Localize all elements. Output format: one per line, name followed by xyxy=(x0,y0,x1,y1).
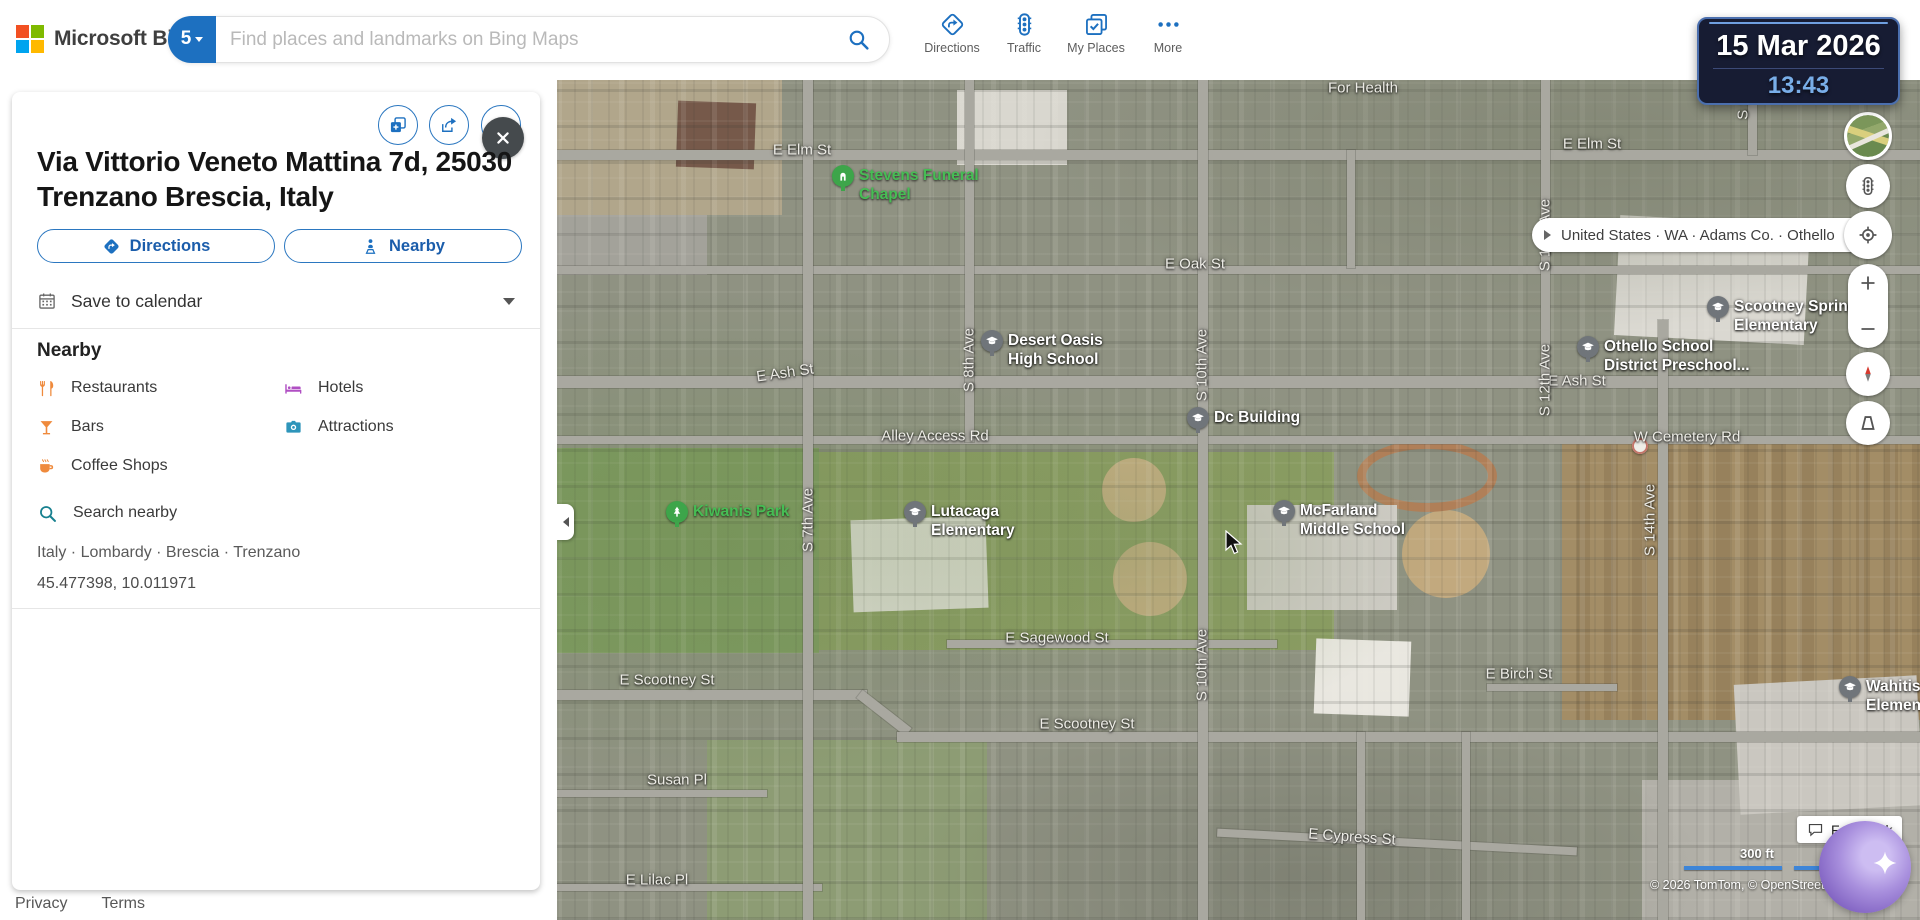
gradcap-icon xyxy=(1577,336,1599,358)
share-button[interactable] xyxy=(429,105,469,145)
nav-more-button[interactable]: More xyxy=(1138,11,1198,55)
directions-icon xyxy=(939,11,966,38)
nearby-restaurants[interactable]: Restaurants xyxy=(37,377,284,399)
save-to-calendar-label: Save to calendar xyxy=(71,291,489,312)
locate-icon xyxy=(1857,224,1879,246)
nearby-bars[interactable]: Bars xyxy=(37,416,284,438)
search-history-badge[interactable]: 5 xyxy=(168,16,216,63)
gradcap-icon xyxy=(1707,296,1729,318)
location-panel: Via Vittorio Veneto Mattina 7d, 25030Tre… xyxy=(12,92,540,890)
nearby-category-grid: RestaurantsHotelsBarsAttractionsCoffee S… xyxy=(37,377,515,524)
nearby-category-label: Search nearby xyxy=(73,504,177,522)
nav-label: Traffic xyxy=(1007,41,1041,55)
chevron-down-icon xyxy=(195,37,203,42)
tree-icon xyxy=(666,501,688,523)
place-label: WahitisElementary xyxy=(1866,677,1920,715)
place-label: Scootney SpringsElementary xyxy=(1734,297,1866,335)
save-icon xyxy=(388,115,408,135)
chevron-left-icon xyxy=(563,517,569,527)
gradcap-icon xyxy=(981,330,1003,352)
top-bar: Microsoft Bing 5 DirectionsTrafficMy Pla… xyxy=(0,0,1920,80)
footer-link-terms[interactable]: Terms xyxy=(101,895,145,913)
map-scale-bar xyxy=(1684,866,1782,870)
place-label: Othello SchoolDistrict Preschool... xyxy=(1604,337,1750,375)
traffic-toggle-button[interactable] xyxy=(1846,164,1890,208)
gradcap-icon xyxy=(1187,407,1209,429)
nav-label: More xyxy=(1154,41,1182,55)
breadcrumb: Italy · Lombardy · Brescia · Trenzano xyxy=(37,544,300,562)
copilot-button[interactable] xyxy=(1819,821,1911,913)
zoom-control xyxy=(1848,264,1888,348)
restaurants-icon xyxy=(37,379,56,398)
nav-directions-button[interactable]: Directions xyxy=(922,11,982,55)
gradcap-icon xyxy=(1273,500,1295,522)
badge-count: 5 xyxy=(181,28,192,50)
footer-link-privacy[interactable]: Privacy xyxy=(15,895,67,913)
save-place-button[interactable] xyxy=(378,105,418,145)
microsoft-logo-icon xyxy=(16,25,44,53)
footer-links: PrivacyTerms xyxy=(15,895,145,913)
gradcap-icon xyxy=(904,501,926,523)
nearby-attractions[interactable]: Attractions xyxy=(284,416,515,438)
nearby-coffee[interactable]: Coffee Shops xyxy=(37,455,284,477)
nearby-category-label: Hotels xyxy=(318,379,363,397)
search-input[interactable] xyxy=(216,29,846,51)
compass-needle-icon xyxy=(1857,363,1879,385)
nearby-hotels[interactable]: Hotels xyxy=(284,377,515,399)
region-breadcrumb[interactable]: United States · WA · Adams Co. · Othello xyxy=(1532,218,1868,252)
place-label: LutacagaElementary xyxy=(931,502,1015,540)
top-nav: DirectionsTrafficMy PlacesMore xyxy=(922,11,1198,55)
clock-date: 15 Mar 2026 xyxy=(1699,30,1898,63)
gradcap-icon xyxy=(1839,676,1861,698)
divider xyxy=(12,328,540,329)
map-style-button[interactable] xyxy=(1844,112,1892,160)
calendar-icon xyxy=(37,291,57,311)
coffee-icon xyxy=(37,457,56,476)
nearby-category-label: Attractions xyxy=(318,418,394,436)
zoom-out-button[interactable] xyxy=(1858,319,1878,339)
place-label: Desert OasisHigh School xyxy=(1008,331,1103,369)
chevron-down-icon xyxy=(503,298,515,305)
search-icon[interactable] xyxy=(846,27,871,52)
nearby-heading: Nearby xyxy=(37,340,101,362)
expand-arrow-icon xyxy=(1544,230,1551,240)
directions-icon xyxy=(102,237,121,256)
map-style-thumbnail-icon xyxy=(1847,115,1889,157)
mouse-cursor xyxy=(1225,530,1247,556)
coordinates: 45.477398, 10.011971 xyxy=(37,575,196,593)
tilt-icon xyxy=(1857,412,1879,434)
place-label: McFarlandMiddle School xyxy=(1300,501,1405,539)
nearby-button[interactable]: Nearby xyxy=(284,229,522,263)
clock-divider xyxy=(1713,68,1884,69)
nearby-search[interactable]: Search nearby xyxy=(37,502,515,524)
clock-overlay: 15 Mar 2026 13:43 xyxy=(1697,17,1900,105)
directions-button[interactable]: Directions xyxy=(37,229,275,263)
map-scale-label: 300 ft xyxy=(1717,846,1797,861)
search-icon xyxy=(37,503,58,524)
nav-traffic-button[interactable]: Traffic xyxy=(994,11,1054,55)
place-label: Stevens FuneralChapel xyxy=(859,166,979,204)
sparkle-icon xyxy=(1869,847,1901,879)
speech-bubble-icon xyxy=(1807,821,1824,838)
region-breadcrumb-text: United States · WA · Adams Co. · Othello xyxy=(1561,227,1835,244)
traffic-light-icon xyxy=(1857,175,1879,197)
nearby-label: Nearby xyxy=(389,237,445,256)
save-to-calendar-row[interactable]: Save to calendar xyxy=(12,282,540,320)
compass-button[interactable] xyxy=(1846,352,1890,396)
share-icon xyxy=(439,115,459,135)
panel-collapse-tab[interactable] xyxy=(557,504,574,540)
bars-icon xyxy=(37,418,56,437)
directions-label: Directions xyxy=(130,237,211,256)
place-label: Dc Building xyxy=(1214,408,1300,427)
tilt-button[interactable] xyxy=(1846,401,1890,445)
more-icon xyxy=(1155,11,1182,38)
nav-myplaces-button[interactable]: My Places xyxy=(1066,11,1126,55)
myplaces-icon xyxy=(1083,11,1110,38)
map-canvas[interactable]: For HealthE Elm StE Elm StE Oak StE Ash … xyxy=(557,80,1920,920)
zoom-in-button[interactable] xyxy=(1858,273,1878,293)
page-title: Via Vittorio Veneto Mattina 7d, 25030Tre… xyxy=(37,144,512,214)
clock-time: 13:43 xyxy=(1699,72,1898,100)
traffic-icon xyxy=(1011,11,1038,38)
places-layer: Stevens FuneralChapelDesert OasisHigh Sc… xyxy=(557,80,1920,920)
locate-me-button[interactable] xyxy=(1844,211,1892,259)
nav-label: My Places xyxy=(1067,41,1125,55)
search-bar: 5 xyxy=(168,16,890,63)
hotels-icon xyxy=(284,379,303,398)
nearby-category-label: Bars xyxy=(71,418,104,436)
chapel-icon xyxy=(832,165,854,187)
divider xyxy=(12,608,540,609)
nearby-category-label: Coffee Shops xyxy=(71,457,168,475)
nearby-person-icon xyxy=(361,237,380,256)
nearby-category-label: Restaurants xyxy=(71,379,157,397)
place-label: Kiwanis Park xyxy=(693,502,790,521)
attractions-icon xyxy=(284,418,303,437)
nav-label: Directions xyxy=(924,41,980,55)
